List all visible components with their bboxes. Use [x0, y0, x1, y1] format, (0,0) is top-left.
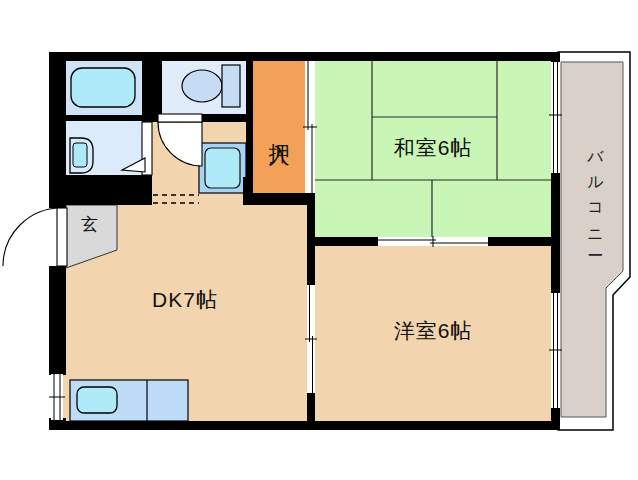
- genkan-entry-label: 玄: [81, 213, 99, 236]
- toilet-tank: [222, 65, 240, 107]
- toilet-bowl: [182, 70, 222, 102]
- washer-pan-inner: [205, 148, 240, 188]
- washitsu-yoshitsu-sliding-door: [378, 236, 488, 247]
- floor-plan: 和室6帖 洋室6帖 DK7帖 押入 玄 バルコニー: [0, 0, 638, 480]
- oshiire-closet-label: 押入: [268, 126, 290, 128]
- floor-plan-drawing: [0, 0, 638, 480]
- bathtub: [71, 68, 135, 107]
- toilet-door-leaf: [158, 114, 202, 122]
- entry-door-leaf: [57, 208, 67, 266]
- window-left-kitchen: [49, 374, 65, 420]
- balcony-label: バルコニー: [585, 138, 606, 256]
- oshiire-fusuma-door: [303, 61, 317, 193]
- yoshitsu-room-label: 洋室6帖: [394, 317, 473, 345]
- dk-room-label: DK7帖: [152, 286, 218, 314]
- washroom-sink-basin: [73, 143, 87, 167]
- entry-door-arc: [3, 208, 61, 266]
- washitsu-room-label: 和室6帖: [394, 134, 473, 162]
- kitchen-sink: [77, 387, 117, 413]
